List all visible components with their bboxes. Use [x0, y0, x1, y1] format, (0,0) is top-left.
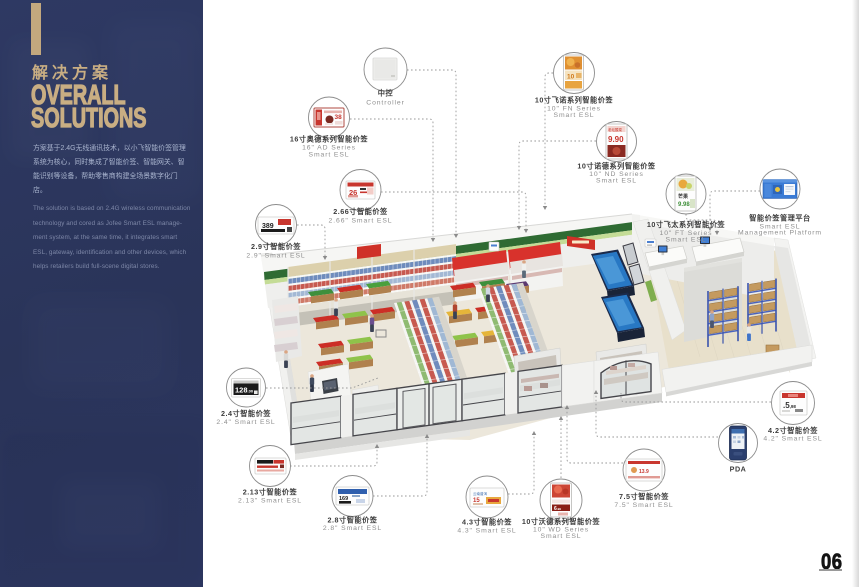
svg-text:2.9寸智能价签: 2.9寸智能价签 [251, 242, 301, 251]
svg-text:2.13寸智能价签: 2.13寸智能价签 [243, 488, 298, 497]
svg-text:16寸奥德系列智能价签: 16寸奥德系列智能价签 [290, 135, 368, 144]
svg-text:389: 389 [262, 223, 274, 230]
svg-text:7.5寸智能价签: 7.5寸智能价签 [619, 492, 669, 501]
svg-text:2.66" Smart ESL: 2.66" Smart ESL [329, 218, 393, 225]
svg-text:10寸沃德系列智能价签: 10寸沃德系列智能价签 [522, 517, 600, 526]
svg-text:Smart ESL: Smart ESL [596, 178, 637, 185]
svg-text:2.13" Smart ESL: 2.13" Smart ESL [238, 498, 302, 505]
svg-text:4.2寸智能价签: 4.2寸智能价签 [768, 426, 818, 435]
svg-text:9.98: 9.98 [678, 202, 690, 208]
svg-text:10寸诺德系列智能价签: 10寸诺德系列智能价签 [577, 162, 655, 171]
svg-text:10: 10 [567, 74, 575, 81]
svg-text:中控: 中控 [378, 89, 394, 98]
svg-text:Management Platform: Management Platform [738, 230, 822, 237]
svg-text:2.8寸智能价签: 2.8寸智能价签 [328, 516, 378, 525]
svg-text:2.4" Smart ESL: 2.4" Smart ESL [216, 419, 275, 426]
svg-text:9.90: 9.90 [608, 135, 624, 144]
svg-text:4.2" Smart ESL: 4.2" Smart ESL [763, 436, 822, 443]
svg-text:16" AD Series: 16" AD Series [302, 145, 356, 152]
svg-text:2.9" Smart ESL: 2.9" Smart ESL [246, 253, 305, 260]
svg-text:4.3" Smart ESL: 4.3" Smart ESL [457, 528, 516, 535]
svg-text:38: 38 [335, 114, 343, 121]
svg-text:Smart ESL: Smart ESL [666, 237, 707, 244]
svg-text:PDA: PDA [730, 465, 747, 474]
svg-text:7.5" Smart ESL: 7.5" Smart ESL [614, 502, 673, 509]
svg-text:13.9: 13.9 [639, 469, 649, 475]
svg-text:Smart ESL: Smart ESL [554, 112, 595, 119]
svg-text:芒果: 芒果 [678, 193, 689, 200]
svg-text:Smart ESL: Smart ESL [541, 533, 582, 540]
svg-text:2.8" Smart ESL: 2.8" Smart ESL [323, 525, 382, 532]
svg-text:老坛酸菜: 老坛酸菜 [608, 127, 622, 132]
svg-text:Controller: Controller [366, 100, 404, 107]
svg-text:2.4寸智能价签: 2.4寸智能价签 [221, 409, 271, 418]
svg-text:10寸飞诺系列智能价签: 10寸飞诺系列智能价签 [535, 96, 613, 105]
svg-text:2.66寸智能价签: 2.66寸智能价签 [333, 207, 388, 216]
svg-text:10寸飞太系列智能价签: 10寸飞太系列智能价签 [647, 220, 725, 229]
svg-text:智能价签管理平台: 智能价签管理平台 [749, 214, 811, 223]
svg-text:Smart ESL: Smart ESL [309, 152, 350, 159]
svg-text:云南普洱: 云南普洱 [473, 491, 487, 496]
svg-text:4.3寸智能价签: 4.3寸智能价签 [462, 518, 512, 527]
